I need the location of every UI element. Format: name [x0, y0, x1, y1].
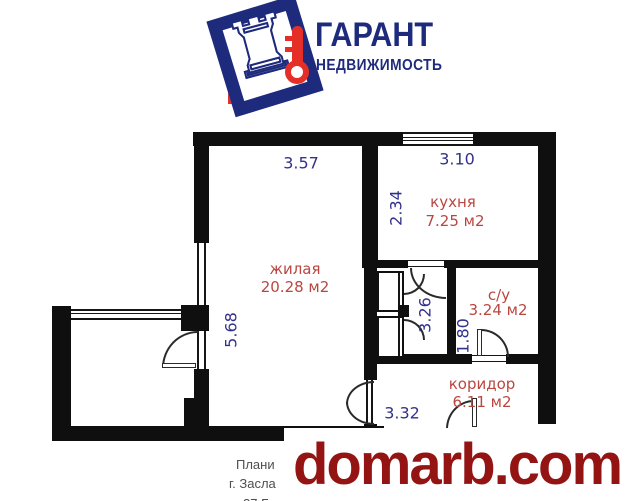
room-area-living: 20.28 м2	[261, 278, 330, 296]
balcony-door-leaf	[162, 363, 196, 368]
logo-title: ГАРАНТ	[315, 16, 433, 55]
room-area-bathroom: 3.24 м2	[468, 301, 527, 319]
dim-corridor-strip: 3.26	[416, 297, 435, 333]
dim-kitchen-left: 2.34	[387, 190, 406, 226]
kitchen-window-line	[403, 132, 473, 134]
floor-plan-page: ♜ ГАРАНТ НЕДВИЖИМОСТЬ	[0, 0, 630, 501]
wall-kitchen-south	[362, 260, 556, 268]
wall-pier-upper	[181, 305, 209, 331]
bathroom-door-leaf	[477, 329, 482, 356]
kitchen-window-line	[403, 140, 473, 141]
logo-subtitle: НЕДВИЖИМОСТЬ	[316, 57, 442, 75]
watermark-text: domarb.com	[293, 431, 621, 498]
balcony-glazing-line	[71, 309, 181, 311]
dim-kitchen-top: 3.10	[439, 150, 475, 169]
living-window-line	[204, 243, 206, 305]
room-label-living: жилая	[269, 260, 320, 278]
kitchen-window-line	[403, 144, 473, 146]
kitchen-window-line	[403, 137, 473, 138]
dim-bathroom-left: 1.80	[454, 318, 473, 354]
closet-door-arc	[404, 274, 425, 295]
wall-right	[538, 132, 556, 424]
dim-living-left: 5.68	[222, 312, 241, 348]
dim-corridor-bottom: 3.32	[384, 404, 420, 423]
key-tooth-icon	[285, 47, 293, 52]
footer-line-2: г. Засла	[229, 476, 276, 491]
watermark-block: domarb.com	[284, 428, 630, 501]
closet-door-line	[398, 318, 400, 356]
room-label-corridor: коридор	[449, 375, 516, 393]
bathroom-door-jamb	[472, 361, 506, 362]
room-label-kitchen: кухня	[430, 193, 476, 211]
balcony-glazing-line	[71, 318, 181, 320]
dim-living-top: 3.57	[283, 154, 319, 173]
footer-line-1: Плани	[236, 457, 275, 472]
key-bow-icon	[285, 60, 309, 84]
wall-top	[193, 132, 556, 146]
kitchen-door-jamb	[408, 266, 444, 267]
living-door-arc	[346, 402, 374, 425]
balcony-door-jamb	[204, 331, 206, 369]
closet-divider	[398, 305, 409, 317]
living-window-line	[197, 243, 199, 305]
balcony-glazing-line	[71, 313, 181, 314]
key-tooth-icon	[285, 36, 293, 41]
partition-living-kitchen	[362, 146, 378, 260]
balcony-wall-left	[52, 306, 71, 441]
room-area-kitchen: 7.25 м2	[425, 212, 484, 230]
wall-pier-lower	[184, 398, 209, 428]
kitchen-door-jamb	[408, 260, 444, 261]
bathroom-door-arc	[481, 329, 509, 357]
room-area-corridor: 6.11 м2	[452, 393, 511, 411]
footer-line-3: 27 Б	[243, 496, 270, 501]
living-door-arc	[346, 381, 374, 404]
